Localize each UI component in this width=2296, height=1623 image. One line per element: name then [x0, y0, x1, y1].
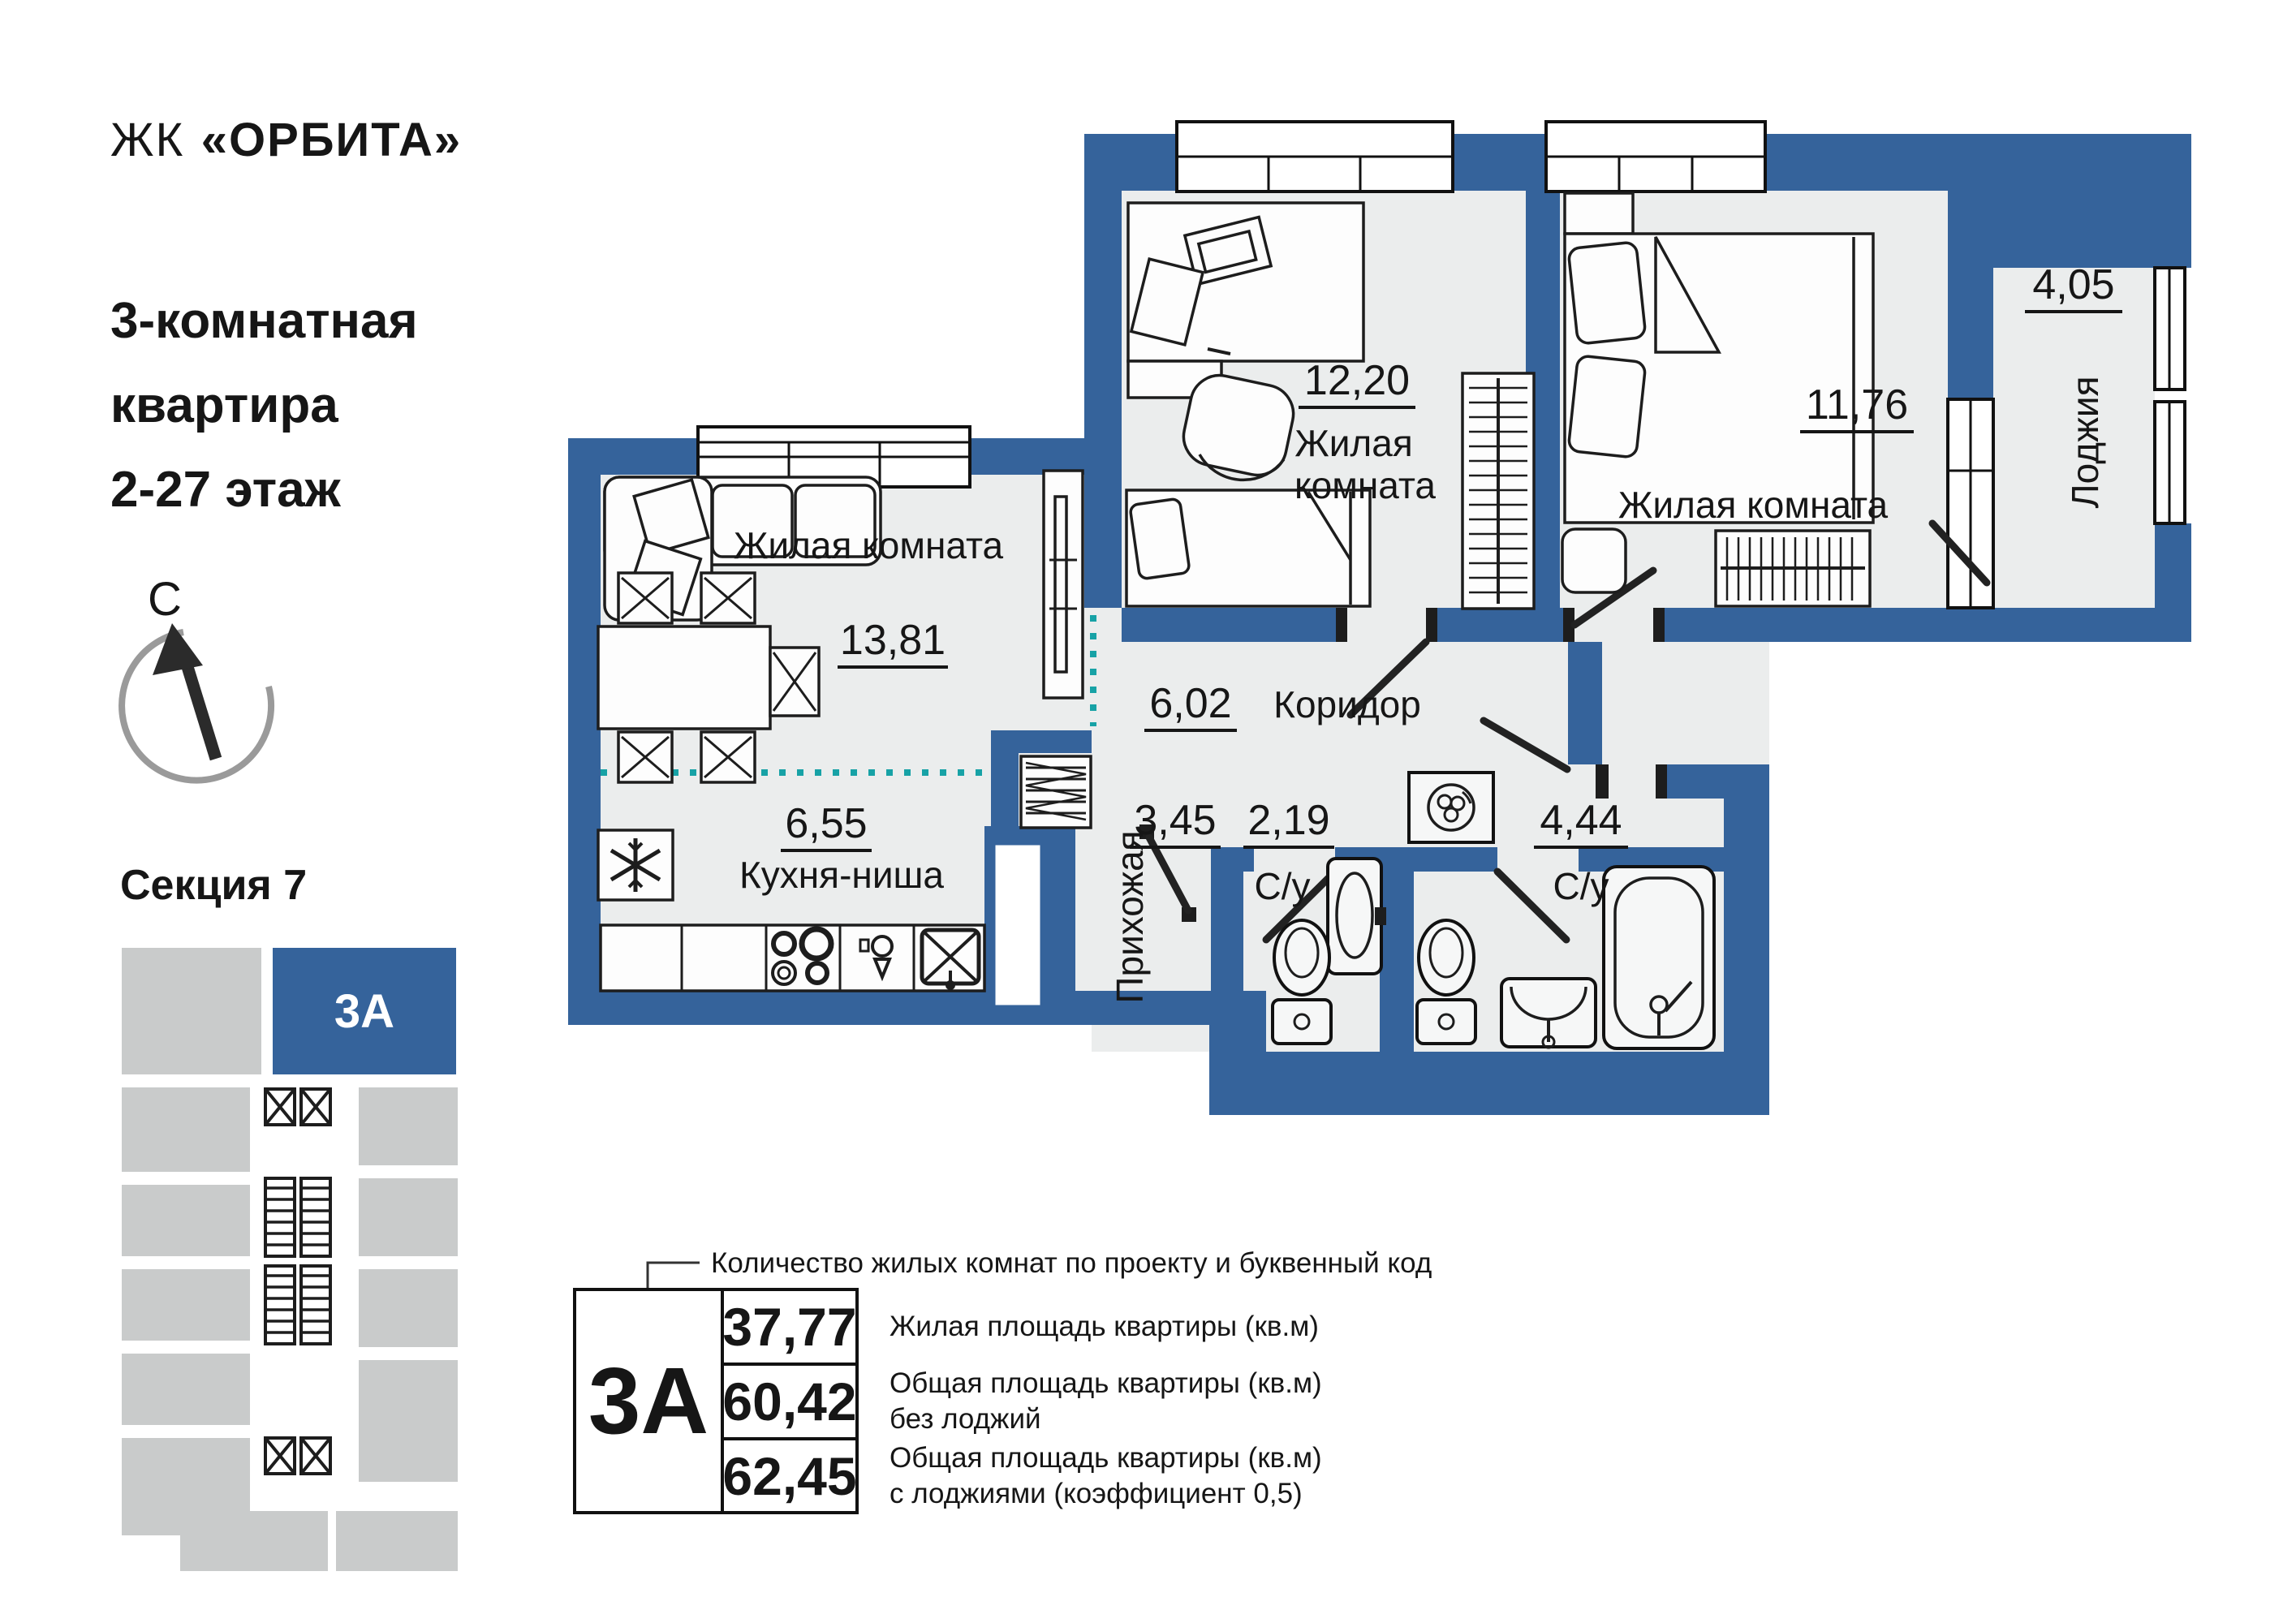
wardrobe-right-icon — [1716, 531, 1870, 606]
bathtub-icon — [1604, 867, 1714, 1048]
stairs-icon — [265, 1178, 330, 1344]
bedroom-middle-name-1: Жилая — [1294, 422, 1413, 464]
subtitle-line-2: квартира — [110, 377, 338, 433]
header: ЖК «ОРБИТА» 3-комнатная квартира 2-27 эт… — [110, 114, 462, 518]
window-loggia-1 — [2155, 268, 2185, 390]
elevator-icon — [265, 1089, 330, 1125]
single-bed-icon — [1126, 490, 1370, 606]
corridor-area: 6,02 — [1149, 680, 1231, 727]
bedroom-right-name: Жилая комната — [1618, 484, 1889, 526]
elevator-icon — [265, 1438, 330, 1474]
legend-unit-code: 3А — [588, 1348, 709, 1453]
legend: Количество жилых комнат по проекту и бук… — [575, 1247, 1432, 1513]
project-prefix: ЖК — [110, 114, 184, 166]
compass-north-label: С — [148, 573, 182, 626]
legend-value-total: 60,42 — [722, 1371, 856, 1431]
section-title: Секция 7 — [120, 862, 307, 909]
hallway-name: Прихожая — [1109, 830, 1151, 1003]
bedroom-right-area: 11,76 — [1806, 381, 1908, 428]
kitchen-name: Кухня-ниша — [739, 854, 944, 896]
legend-value-living: 37,77 — [722, 1297, 856, 1357]
section-block: Секция 7 3А — [120, 862, 458, 1571]
fridge-icon — [598, 830, 673, 900]
kitchen-area: 6,55 — [785, 800, 867, 847]
bedroom-middle-name-2: комната — [1294, 464, 1436, 506]
kitchen-counter-icon — [601, 925, 984, 991]
tv-stand-icon — [1044, 471, 1083, 698]
living-area: 13,81 — [840, 617, 946, 664]
washing-machine-icon — [1409, 773, 1493, 842]
legend-value-total-loggia: 62,45 — [722, 1446, 856, 1506]
minimap-unit — [122, 948, 261, 1074]
wardrobe-middle-icon — [1462, 373, 1534, 609]
hallway-wardrobe-icon — [1021, 756, 1091, 828]
subtitle-line-3: 2-27 этаж — [110, 462, 342, 518]
bedroom-middle-area: 12,20 — [1304, 357, 1410, 404]
floor-plan: Жилая комната 13,81 6,55 Кухня-ниша 12,2… — [568, 122, 2191, 1115]
floorplan-page: ЖК «ОРБИТА» 3-комнатная квартира 2-27 эт… — [0, 0, 2296, 1623]
subtitle-line-1: 3-комнатная — [110, 293, 418, 349]
window-bedroom-right — [1546, 122, 1765, 192]
legend-callout: Количество жилых комнат по проекту и бук… — [711, 1247, 1432, 1279]
sink-large-bath-icon — [1501, 979, 1596, 1048]
toilet-large-bath-icon — [1417, 920, 1475, 1044]
bathroom-large-name: С/у — [1553, 865, 1609, 907]
loggia-area: 4,05 — [2032, 261, 2114, 308]
window-loggia-2 — [2155, 402, 2185, 523]
window-bedroom-middle — [1177, 122, 1453, 192]
bathroom-small-area: 2,19 — [1247, 797, 1329, 844]
legend-label-total-1: Общая площадь квартиры (кв.м) — [890, 1367, 1322, 1399]
vent-shaft — [994, 844, 1041, 1006]
legend-label-total-2: без лоджий — [890, 1403, 1041, 1435]
toilet-small-bath-icon — [1273, 920, 1331, 1044]
legend-label-total-loggia-1: Общая площадь квартиры (кв.м) — [890, 1442, 1322, 1474]
minimap-unit-3a-label: 3А — [334, 985, 394, 1038]
compass-icon: С — [122, 573, 271, 781]
loggia-name: Лоджия — [2064, 377, 2106, 509]
sink-small-bath-icon — [1328, 859, 1386, 974]
corridor-name: Коридор — [1273, 683, 1421, 725]
section-minimap: 3А — [122, 948, 458, 1571]
balcony-door-unit — [1948, 399, 1993, 608]
legend-label-living: Жилая площадь квартиры (кв.м) — [890, 1311, 1319, 1342]
bathroom-large-area: 4,44 — [1540, 797, 1622, 844]
project-name: «ОРБИТА» — [201, 114, 462, 166]
bathroom-small-name: С/у — [1255, 865, 1311, 907]
legend-label-total-loggia-2: с лоджиями (коэффициент 0,5) — [890, 1478, 1303, 1509]
living-name: Жилая комната — [734, 524, 1004, 566]
page-title: ЖК «ОРБИТА» — [110, 114, 462, 166]
